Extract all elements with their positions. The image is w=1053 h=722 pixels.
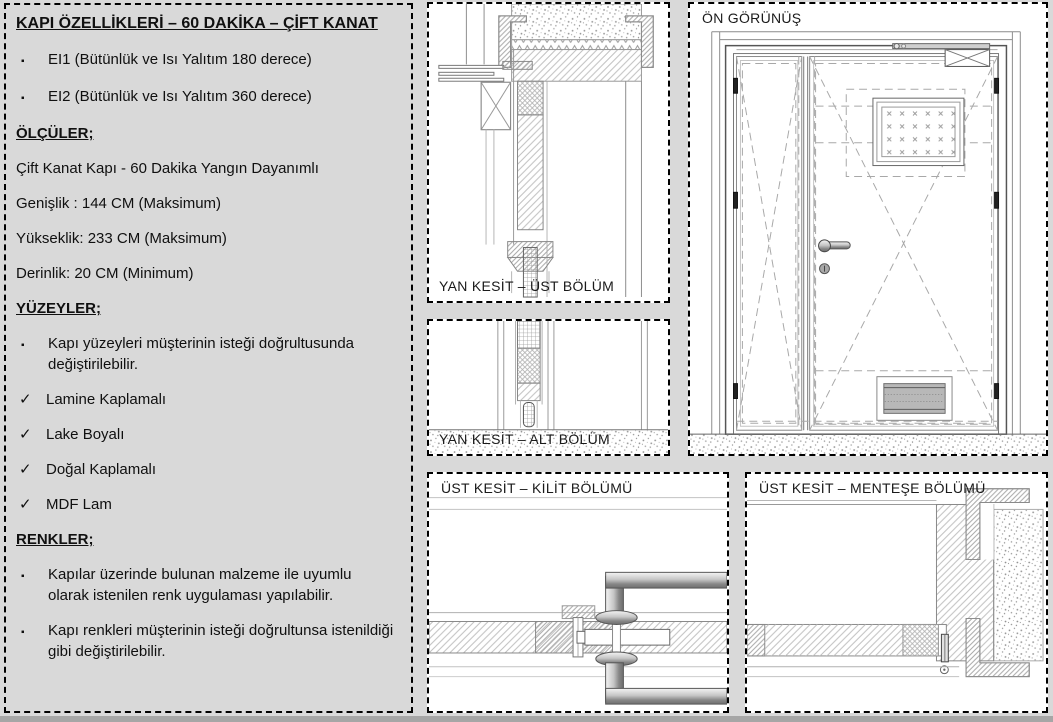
bullet-icon: ▪ bbox=[16, 620, 48, 662]
spec-item-ei1: ▪ EI1 (Bütünlük ve Isı Yalıtım 180 derec… bbox=[16, 49, 395, 72]
spec-item-text: Çift Kanat Kapı - 60 Dakika Yangın Dayan… bbox=[16, 158, 395, 179]
spec-item-lamine: ✓ Lamine Kaplamalı bbox=[16, 389, 395, 410]
spec-heading-text: RENKLER; bbox=[16, 529, 395, 550]
bullet-icon: ▪ bbox=[16, 49, 48, 72]
panel-side-section-bottom: YAN KESİT – ALT BÖLÜM bbox=[427, 319, 670, 456]
bullet-icon: ▪ bbox=[16, 564, 48, 606]
check-icon: ✓ bbox=[16, 424, 46, 445]
panel-label-side-bottom: YAN KESİT – ALT BÖLÜM bbox=[439, 431, 610, 447]
check-icon: ✓ bbox=[16, 459, 46, 480]
spec-item-text: MDF Lam bbox=[46, 494, 395, 515]
spec-item-text: Lake Boyalı bbox=[46, 424, 395, 445]
spec-item-lake: ✓ Lake Boyalı bbox=[16, 424, 395, 445]
spec-item-text: EI2 (Bütünlük ve Isı Yalıtım 360 derece) bbox=[48, 86, 395, 109]
panel-label-top-hinge: ÜST KESİT – MENTEŞE BÖLÜMÜ bbox=[759, 480, 986, 496]
spec-item-depth: Derinlik: 20 CM (Minimum) bbox=[16, 263, 395, 284]
spec-item-text: EI1 (Bütünlük ve Isı Yalıtım 180 derece) bbox=[48, 49, 395, 72]
page-bottom-edge bbox=[0, 716, 1053, 722]
spec-item-text: Genişlik : 144 CM (Maksimum) bbox=[16, 193, 395, 214]
panel-label-front-view: ÖN GÖRÜNÜŞ bbox=[702, 10, 801, 26]
spec-item-mdf: ✓ MDF Lam bbox=[16, 494, 395, 515]
top-section-lock-drawing bbox=[429, 474, 727, 711]
spec-item-dogal: ✓ Doğal Kaplamalı bbox=[16, 459, 395, 480]
spec-title-text: KAPI ÖZELLİKLERİ – 60 DAKİKA – ÇİFT KANA… bbox=[16, 13, 395, 34]
spec-item-text: Doğal Kaplamalı bbox=[46, 459, 395, 480]
spec-item-text: Kapılar üzerinde bulunan malzeme ile uyu… bbox=[48, 564, 395, 606]
spec-heading-text: YÜZEYLER; bbox=[16, 298, 395, 319]
spec-item-height: Yükseklik: 233 CM (Maksimum) bbox=[16, 228, 395, 249]
bullet-icon: ▪ bbox=[16, 86, 48, 109]
side-section-top-drawing bbox=[429, 4, 668, 301]
check-icon: ✓ bbox=[16, 494, 46, 515]
spec-item-width: Genişlik : 144 CM (Maksimum) bbox=[16, 193, 395, 214]
spec-panel: KAPI ÖZELLİKLERİ – 60 DAKİKA – ÇİFT KANA… bbox=[4, 3, 413, 713]
spec-heading-yuzeyler: YÜZEYLER; bbox=[16, 298, 395, 319]
check-icon: ✓ bbox=[16, 389, 46, 410]
spec-item-ei2: ▪ EI2 (Bütünlük ve Isı Yalıtım 360 derec… bbox=[16, 86, 395, 109]
spec-item-text: Kapı yüzeyleri müşterinin isteği doğrult… bbox=[48, 333, 395, 375]
spec-item-text: Yükseklik: 233 CM (Maksimum) bbox=[16, 228, 395, 249]
panel-label-top-lock: ÜST KESİT – KİLİT BÖLÜMÜ bbox=[441, 480, 633, 496]
spec-heading-text: ÖLÇÜLER; bbox=[16, 123, 395, 144]
bullet-icon: ▪ bbox=[16, 333, 48, 375]
front-view-drawing bbox=[690, 4, 1046, 454]
spec-item-surfaces: ▪ Kapı yüzeyleri müşterinin isteği doğru… bbox=[16, 333, 395, 375]
panel-label-side-top: YAN KESİT – ÜST BÖLÜM bbox=[439, 278, 614, 294]
panel-top-section-lock: ÜST KESİT – KİLİT BÖLÜMÜ bbox=[427, 472, 729, 713]
spec-item-colors-2: ▪ Kapı renkleri müşterinin isteği doğrul… bbox=[16, 620, 395, 662]
spec-item-text: Derinlik: 20 CM (Minimum) bbox=[16, 263, 395, 284]
datasheet-page: { "page": { "bg": "#d9d9d9", "panel_bg":… bbox=[0, 0, 1053, 722]
spec-item-text: Lamine Kaplamalı bbox=[46, 389, 395, 410]
spec-item-text: Kapı renkleri müşterinin isteği doğrultu… bbox=[48, 620, 395, 662]
top-section-hinge-drawing bbox=[747, 474, 1046, 711]
spec-title: KAPI ÖZELLİKLERİ – 60 DAKİKA – ÇİFT KANA… bbox=[16, 13, 395, 34]
spec-heading-renkler: RENKLER; bbox=[16, 529, 395, 550]
panel-front-view: ÖN GÖRÜNÜŞ bbox=[688, 2, 1048, 456]
spec-heading-olculer: ÖLÇÜLER; bbox=[16, 123, 395, 144]
spec-item-type: Çift Kanat Kapı - 60 Dakika Yangın Dayan… bbox=[16, 158, 395, 179]
spec-item-colors-1: ▪ Kapılar üzerinde bulunan malzeme ile u… bbox=[16, 564, 395, 606]
panel-top-section-hinge: ÜST KESİT – MENTEŞE BÖLÜMÜ bbox=[745, 472, 1048, 713]
panel-side-section-top: YAN KESİT – ÜST BÖLÜM bbox=[427, 2, 670, 303]
